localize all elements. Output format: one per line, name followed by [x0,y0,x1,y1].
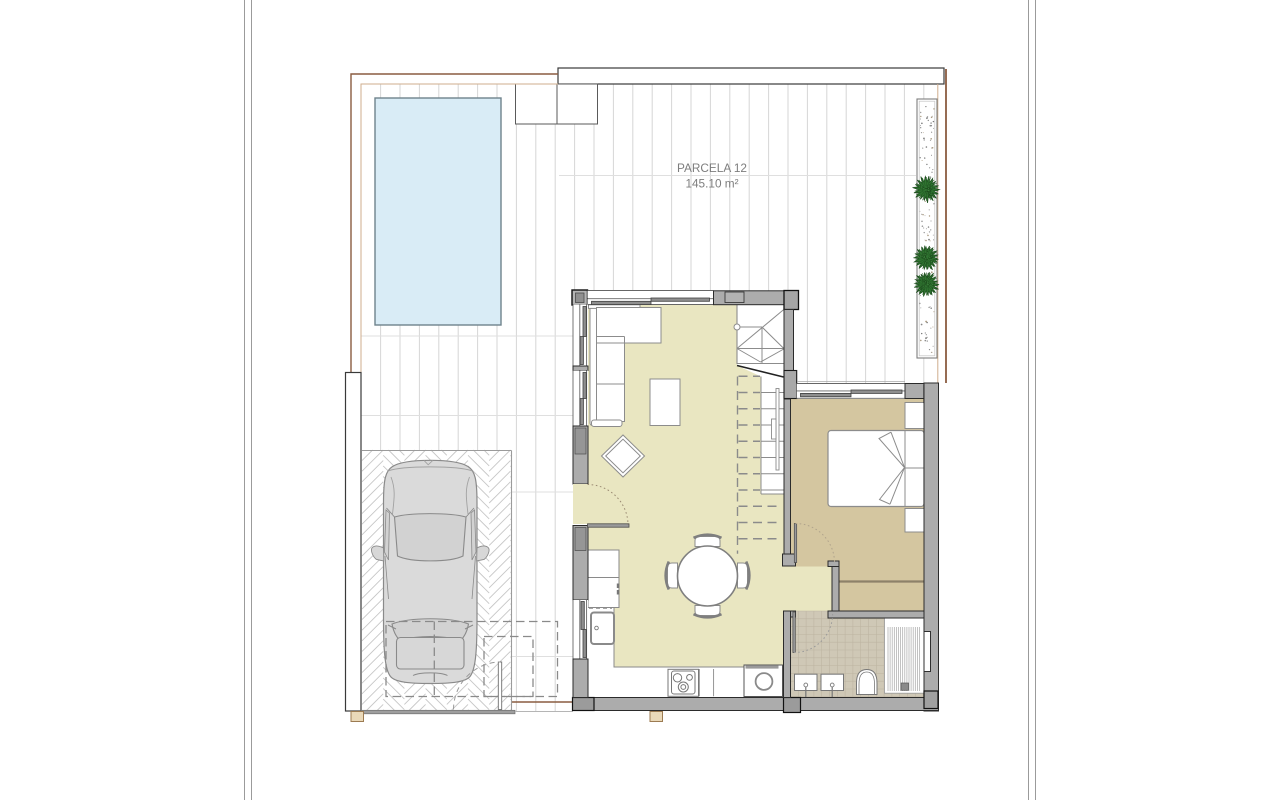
svg-text:145.10 m²: 145.10 m² [685,177,738,191]
svg-text:PARCELA 12: PARCELA 12 [677,161,747,175]
